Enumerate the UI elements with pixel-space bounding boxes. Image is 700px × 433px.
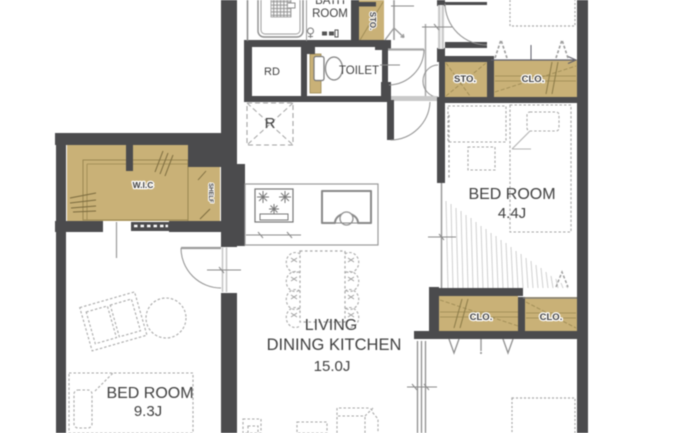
svg-text:TOILET: TOILET — [339, 65, 379, 77]
svg-text:ROOM: ROOM — [312, 8, 348, 20]
svg-text:R: R — [265, 115, 276, 132]
svg-text:STO.: STO. — [454, 74, 476, 85]
svg-text:BED ROOM: BED ROOM — [468, 186, 555, 203]
svg-text:CLO.: CLO. — [522, 74, 545, 85]
svg-text:W.I.C: W.I.C — [133, 180, 154, 190]
svg-text:CLO.: CLO. — [540, 312, 563, 323]
svg-text:RD: RD — [264, 66, 280, 78]
svg-text:LIVING: LIVING — [305, 317, 357, 334]
svg-text:STO.: STO. — [368, 12, 377, 31]
svg-text:9.3J: 9.3J — [134, 403, 162, 420]
svg-text:4.4J: 4.4J — [498, 205, 526, 222]
svg-text:BATH: BATH — [315, 0, 345, 7]
svg-text:SHELF: SHELF — [207, 183, 213, 203]
svg-text:DINING KITCHEN: DINING KITCHEN — [267, 336, 402, 354]
svg-text:CLO.: CLO. — [470, 312, 493, 323]
svg-text:BED ROOM: BED ROOM — [106, 385, 193, 402]
svg-text:15.0J: 15.0J — [314, 358, 351, 375]
